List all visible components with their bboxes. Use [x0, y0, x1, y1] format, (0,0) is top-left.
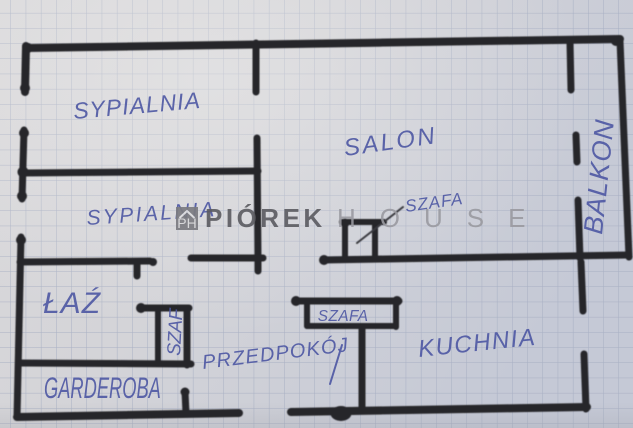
- svg-text:ŁAŹ: ŁAŹ: [43, 287, 102, 320]
- svg-text:PH: PH: [177, 215, 196, 231]
- svg-text:HOUSE: HOUSE: [337, 203, 549, 233]
- svg-text:GARDEROBA: GARDEROBA: [44, 373, 161, 406]
- svg-text:SZAFA: SZAFA: [318, 308, 369, 325]
- svg-text:SZAF: SZAF: [164, 307, 188, 356]
- svg-text:PIÓREK: PIÓREK: [205, 203, 326, 233]
